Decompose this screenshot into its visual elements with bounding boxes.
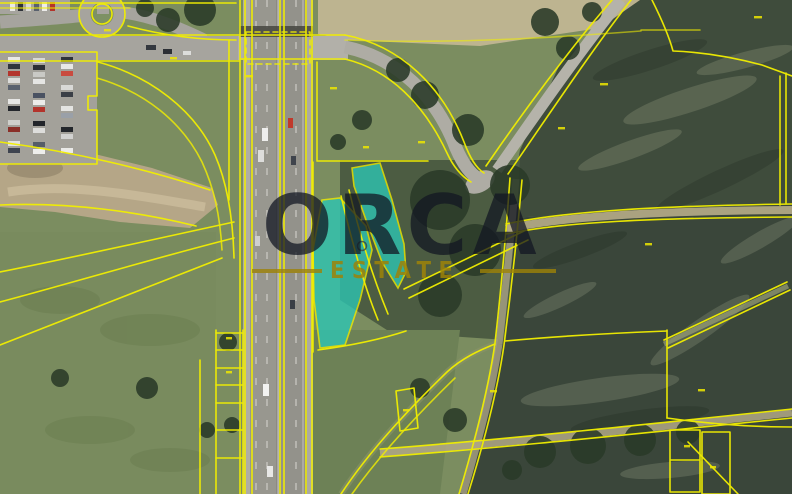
watermark-rule-right (480, 269, 556, 273)
watermark-brand-text: ORCA (262, 184, 542, 267)
cadastral-map-view[interactable]: ORCA ESTATE (0, 0, 792, 494)
watermark-subtitle-text: ESTATE (330, 258, 460, 284)
watermark-subtitle-row: ESTATE (252, 258, 544, 284)
watermark-rule-left (252, 269, 322, 273)
